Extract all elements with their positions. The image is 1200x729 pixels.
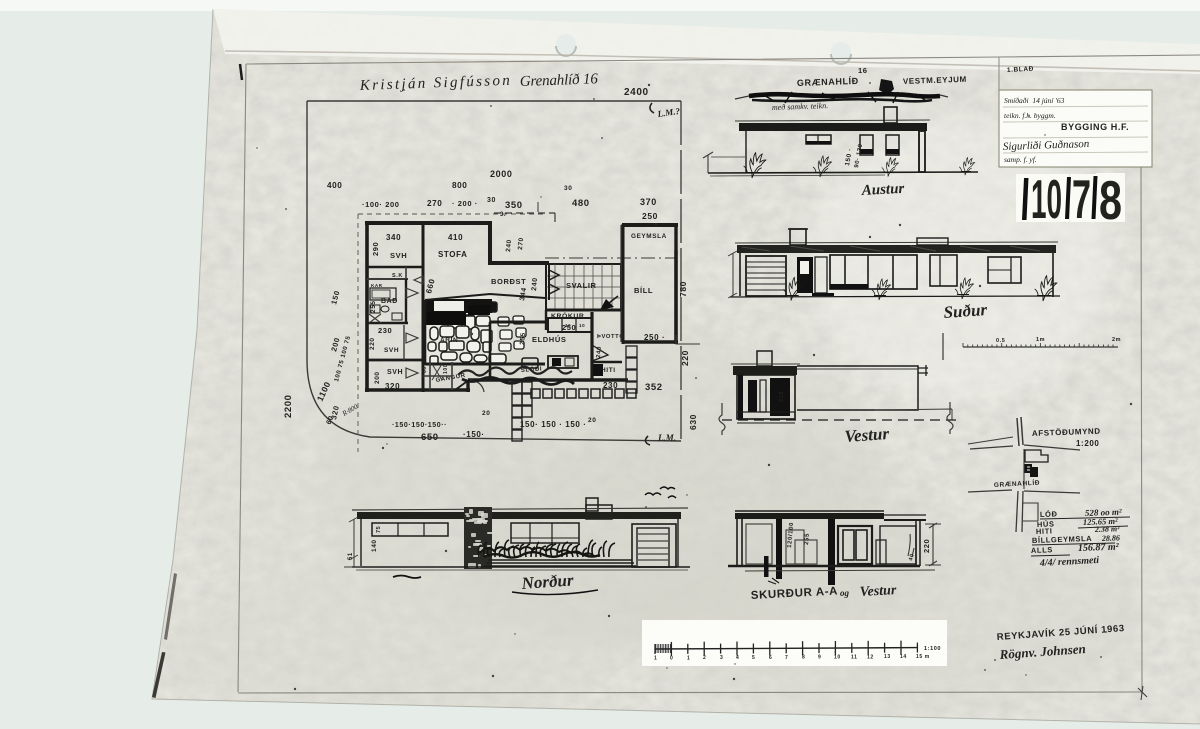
svg-text:4: 4 xyxy=(736,655,739,661)
svg-text:SVH: SVH xyxy=(387,369,403,376)
svg-text:255: 255 xyxy=(804,533,811,545)
svg-text:5: 5 xyxy=(752,655,755,661)
svg-text:HITI: HITI xyxy=(601,367,616,374)
svg-text:Austur: Austur xyxy=(860,181,904,199)
svg-text:1: 1 xyxy=(687,655,690,661)
svg-text:1.BLAÐ: 1.BLAÐ xyxy=(1007,66,1034,74)
svg-text:Vestur: Vestur xyxy=(859,583,897,600)
svg-text:15 m: 15 m xyxy=(916,654,930,660)
svg-text:780: 780 xyxy=(678,281,688,297)
svg-text:Norður: Norður xyxy=(520,570,575,593)
svg-text:10: 10 xyxy=(1031,168,1062,230)
svg-text:630: 630 xyxy=(688,414,698,430)
svg-text:370: 370 xyxy=(640,197,657,207)
svg-text:220: 220 xyxy=(680,350,690,366)
svg-text:240: 240 xyxy=(531,277,539,291)
svg-text:BYGGING H.F.: BYGGING H.F. xyxy=(1061,122,1129,132)
svg-text:30: 30 xyxy=(564,185,572,192)
svg-text:10: 10 xyxy=(834,655,841,661)
svg-text:GEYMSLA: GEYMSLA xyxy=(631,233,667,240)
svg-text:20: 20 xyxy=(482,410,490,417)
svg-text:51: 51 xyxy=(348,552,354,560)
svg-text:350: 350 xyxy=(505,200,523,211)
svg-text:2: 2 xyxy=(703,655,706,661)
svg-text:352: 352 xyxy=(645,382,663,393)
svg-text:KAR: KAR xyxy=(371,283,383,288)
svg-text:340: 340 xyxy=(386,233,401,242)
svg-text:SVH: SVH xyxy=(384,347,399,354)
svg-text:270: 270 xyxy=(427,199,442,208)
svg-text:320: 320 xyxy=(385,382,400,391)
svg-text:480: 480 xyxy=(572,198,590,209)
svg-text:BORÐST: BORÐST xyxy=(491,277,526,286)
svg-text:650: 650 xyxy=(421,432,439,443)
svg-text:12: 12 xyxy=(867,654,874,660)
svg-text:Smíðaði 14 júní '63: Smíðaði 14 júní '63 xyxy=(1004,96,1065,105)
svg-text:3: 3 xyxy=(720,655,723,661)
svg-text:150· 150 · 150 ·: 150· 150 · 150 · xyxy=(520,420,587,429)
svg-text:6: 6 xyxy=(769,655,772,661)
svg-text:230: 230 xyxy=(378,326,392,335)
svg-text:210: 210 xyxy=(779,391,785,402)
svg-text:2m: 2m xyxy=(1112,337,1121,343)
svg-text:250: 250 xyxy=(642,211,658,221)
svg-text:75: 75 xyxy=(376,526,382,533)
svg-text:220: 220 xyxy=(922,539,931,553)
svg-text:7: 7 xyxy=(1072,168,1091,230)
svg-text:ARIN: ARIN xyxy=(440,337,458,344)
svg-text:140: 140 xyxy=(371,539,378,552)
svg-text:0: 0 xyxy=(670,655,673,661)
svg-text:SVH: SVH xyxy=(390,251,407,260)
svg-text:ÞVOTTO: ÞVOTTO xyxy=(597,334,624,340)
svg-text:400: 400 xyxy=(327,181,342,190)
svg-text:ELDHÚS: ELDHÚS xyxy=(532,335,566,344)
svg-text:og: og xyxy=(840,588,850,598)
svg-text:60: 60 xyxy=(422,366,428,373)
svg-text:BÍLL: BÍLL xyxy=(634,286,653,295)
svg-text:0.5: 0.5 xyxy=(996,338,1005,344)
svg-text:S.K: S.K xyxy=(392,273,403,279)
svg-text:1m: 1m xyxy=(1036,337,1045,343)
svg-text:Vestur: Vestur xyxy=(844,424,890,446)
svg-text:L.M.: L.M. xyxy=(657,433,676,443)
svg-text:1:200: 1:200 xyxy=(1076,439,1099,448)
svg-text:14: 14 xyxy=(900,654,907,660)
svg-text:10: 10 xyxy=(579,323,585,328)
svg-text:1: 1 xyxy=(654,656,657,662)
svg-text:800: 800 xyxy=(452,181,467,190)
svg-text:255: 255 xyxy=(370,300,377,313)
svg-text:220: 220 xyxy=(369,337,376,350)
svg-text:16: 16 xyxy=(565,323,571,328)
svg-text:SVALIR: SVALIR xyxy=(566,281,597,290)
svg-text:410: 410 xyxy=(448,233,463,242)
svg-text:· 200 ·: · 200 · xyxy=(452,199,478,208)
svg-text:teikn. f.h. byggm.: teikn. f.h. byggm. xyxy=(1004,111,1056,120)
svg-text:LÓÐ: LÓÐ xyxy=(1040,509,1058,519)
svg-text:2200: 2200 xyxy=(283,394,294,418)
svg-text:samp. f. yf.: samp. f. yf. xyxy=(1004,155,1037,164)
svg-text:·150·150·150··: ·150·150·150·· xyxy=(392,422,447,429)
svg-text:16: 16 xyxy=(858,66,868,75)
svg-text:8: 8 xyxy=(1099,169,1122,231)
svg-text:240: 240 xyxy=(505,239,513,252)
svg-text:ALLS: ALLS xyxy=(1031,545,1053,555)
svg-text:255: 255 xyxy=(519,332,527,345)
svg-text:·150·: ·150· xyxy=(463,430,485,439)
svg-text:7: 7 xyxy=(785,655,788,661)
svg-text:270: 270 xyxy=(517,237,525,250)
svg-text:290: 290 xyxy=(371,242,380,256)
svg-text:3.: 3. xyxy=(500,212,506,218)
svg-text:BAÐ: BAÐ xyxy=(381,298,398,305)
svg-text:2400: 2400 xyxy=(624,87,649,98)
svg-text:STOFA: STOFA xyxy=(438,250,468,259)
svg-text:20: 20 xyxy=(588,417,596,424)
svg-text:8: 8 xyxy=(802,655,805,661)
svg-text:·100· 200: ·100· 200 xyxy=(362,200,400,209)
svg-text:11: 11 xyxy=(851,654,858,660)
svg-text:2000: 2000 xyxy=(490,169,512,179)
svg-text:250 ·: 250 · xyxy=(644,333,665,342)
svg-text:Suður: Suður xyxy=(943,300,988,322)
svg-text:200: 200 xyxy=(374,371,381,384)
svg-text:1:100: 1:100 xyxy=(924,646,941,652)
svg-text:Grenahlíð 16: Grenahlíð 16 xyxy=(520,71,599,90)
svg-text:100: 100 xyxy=(443,364,449,374)
svg-text:30: 30 xyxy=(487,197,496,204)
svg-text:13: 13 xyxy=(884,654,891,660)
svg-text:9: 9 xyxy=(818,655,821,661)
